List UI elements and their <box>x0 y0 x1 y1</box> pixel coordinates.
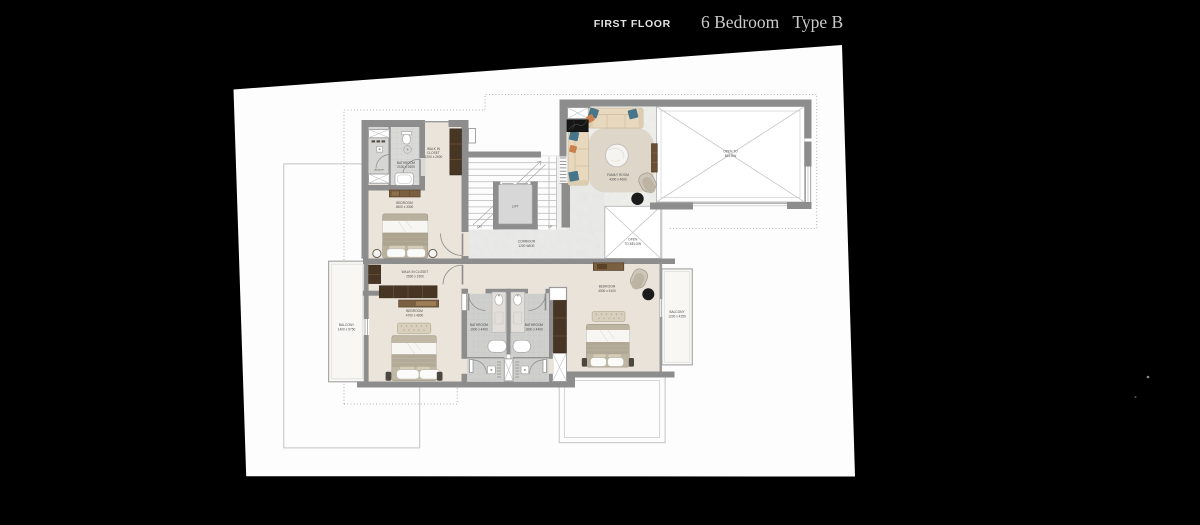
svg-text:BALCONY: BALCONY <box>339 323 355 327</box>
svg-text:OPEN TO: OPEN TO <box>723 150 738 154</box>
svg-text:4600 x 3300: 4600 x 3300 <box>396 205 414 209</box>
svg-text:1200 x 2600: 1200 x 2600 <box>425 155 443 159</box>
svg-text:1200 x 4250: 1200 x 4250 <box>668 315 686 319</box>
svg-text:2600 x 1500: 2600 x 1500 <box>406 275 424 279</box>
svg-text:4700 x 4800: 4700 x 4800 <box>406 314 424 318</box>
svg-text:6 Bedroom: 6 Bedroom <box>701 12 780 32</box>
svg-text:BATHROOM: BATHROOM <box>470 323 489 327</box>
svg-text:LAUNDRY: LAUNDRY <box>374 169 385 172</box>
svg-text:4000 x 5100: 4000 x 5100 <box>598 289 616 293</box>
svg-text:BELOW: BELOW <box>725 154 737 158</box>
svg-text:Type B: Type B <box>792 12 843 32</box>
svg-text:CORRIDOR: CORRIDOR <box>518 240 536 244</box>
svg-text:BATHROOM: BATHROOM <box>525 323 544 327</box>
svg-text:1900 x 4400: 1900 x 4400 <box>470 328 488 332</box>
svg-text:1400 x 5750: 1400 x 5750 <box>338 328 356 332</box>
svg-text:DN: DN <box>477 225 481 229</box>
svg-text:BEDROOM: BEDROOM <box>599 285 616 289</box>
svg-text:OPEN: OPEN <box>628 238 638 242</box>
svg-text:FIRST FLOOR: FIRST FLOOR <box>594 18 671 30</box>
svg-text:BALCONY: BALCONY <box>669 310 685 314</box>
svg-text:LIFT: LIFT <box>512 205 519 209</box>
svg-text:FAMILY ROOM: FAMILY ROOM <box>607 173 629 177</box>
svg-text:TO BELOW: TO BELOW <box>624 242 641 246</box>
svg-text:UP: UP <box>548 225 552 229</box>
svg-text:2100 x 2600: 2100 x 2600 <box>397 165 415 169</box>
svg-text:1200 WIDE: 1200 WIDE <box>518 244 534 248</box>
svg-text:1800 x 4400: 1800 x 4400 <box>525 328 543 332</box>
svg-text:4300 x 4600: 4300 x 4600 <box>609 178 627 182</box>
svg-text:WALK IN CLOSET: WALK IN CLOSET <box>402 270 429 274</box>
svg-text:BEDROOM: BEDROOM <box>406 309 423 313</box>
